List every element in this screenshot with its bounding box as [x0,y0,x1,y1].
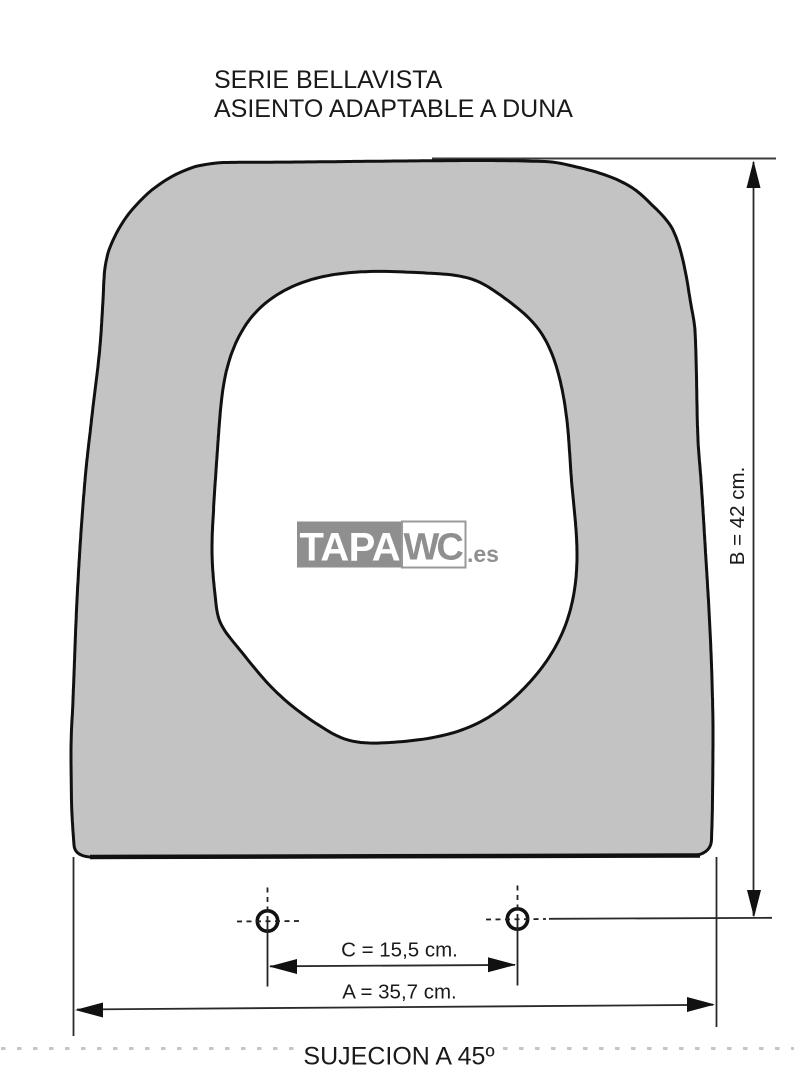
svg-text:SERIE BELLAVISTA: SERIE BELLAVISTA [214,66,443,94]
svg-text:ASIENTO ADAPTABLE A DUNA: ASIENTO ADAPTABLE A DUNA [214,95,573,123]
svg-text:.es: .es [467,541,499,567]
svg-text:TAPA: TAPA [300,526,401,570]
svg-text:B = 42 cm.: B = 42 cm. [726,467,749,566]
svg-text:WC: WC [404,527,464,569]
svg-text:A = 35,7 cm.: A = 35,7 cm. [342,981,457,1004]
svg-text:SUJECION A 45º: SUJECION A 45º [303,1043,494,1071]
svg-text:C = 15,5 cm.: C = 15,5 cm. [341,939,458,962]
